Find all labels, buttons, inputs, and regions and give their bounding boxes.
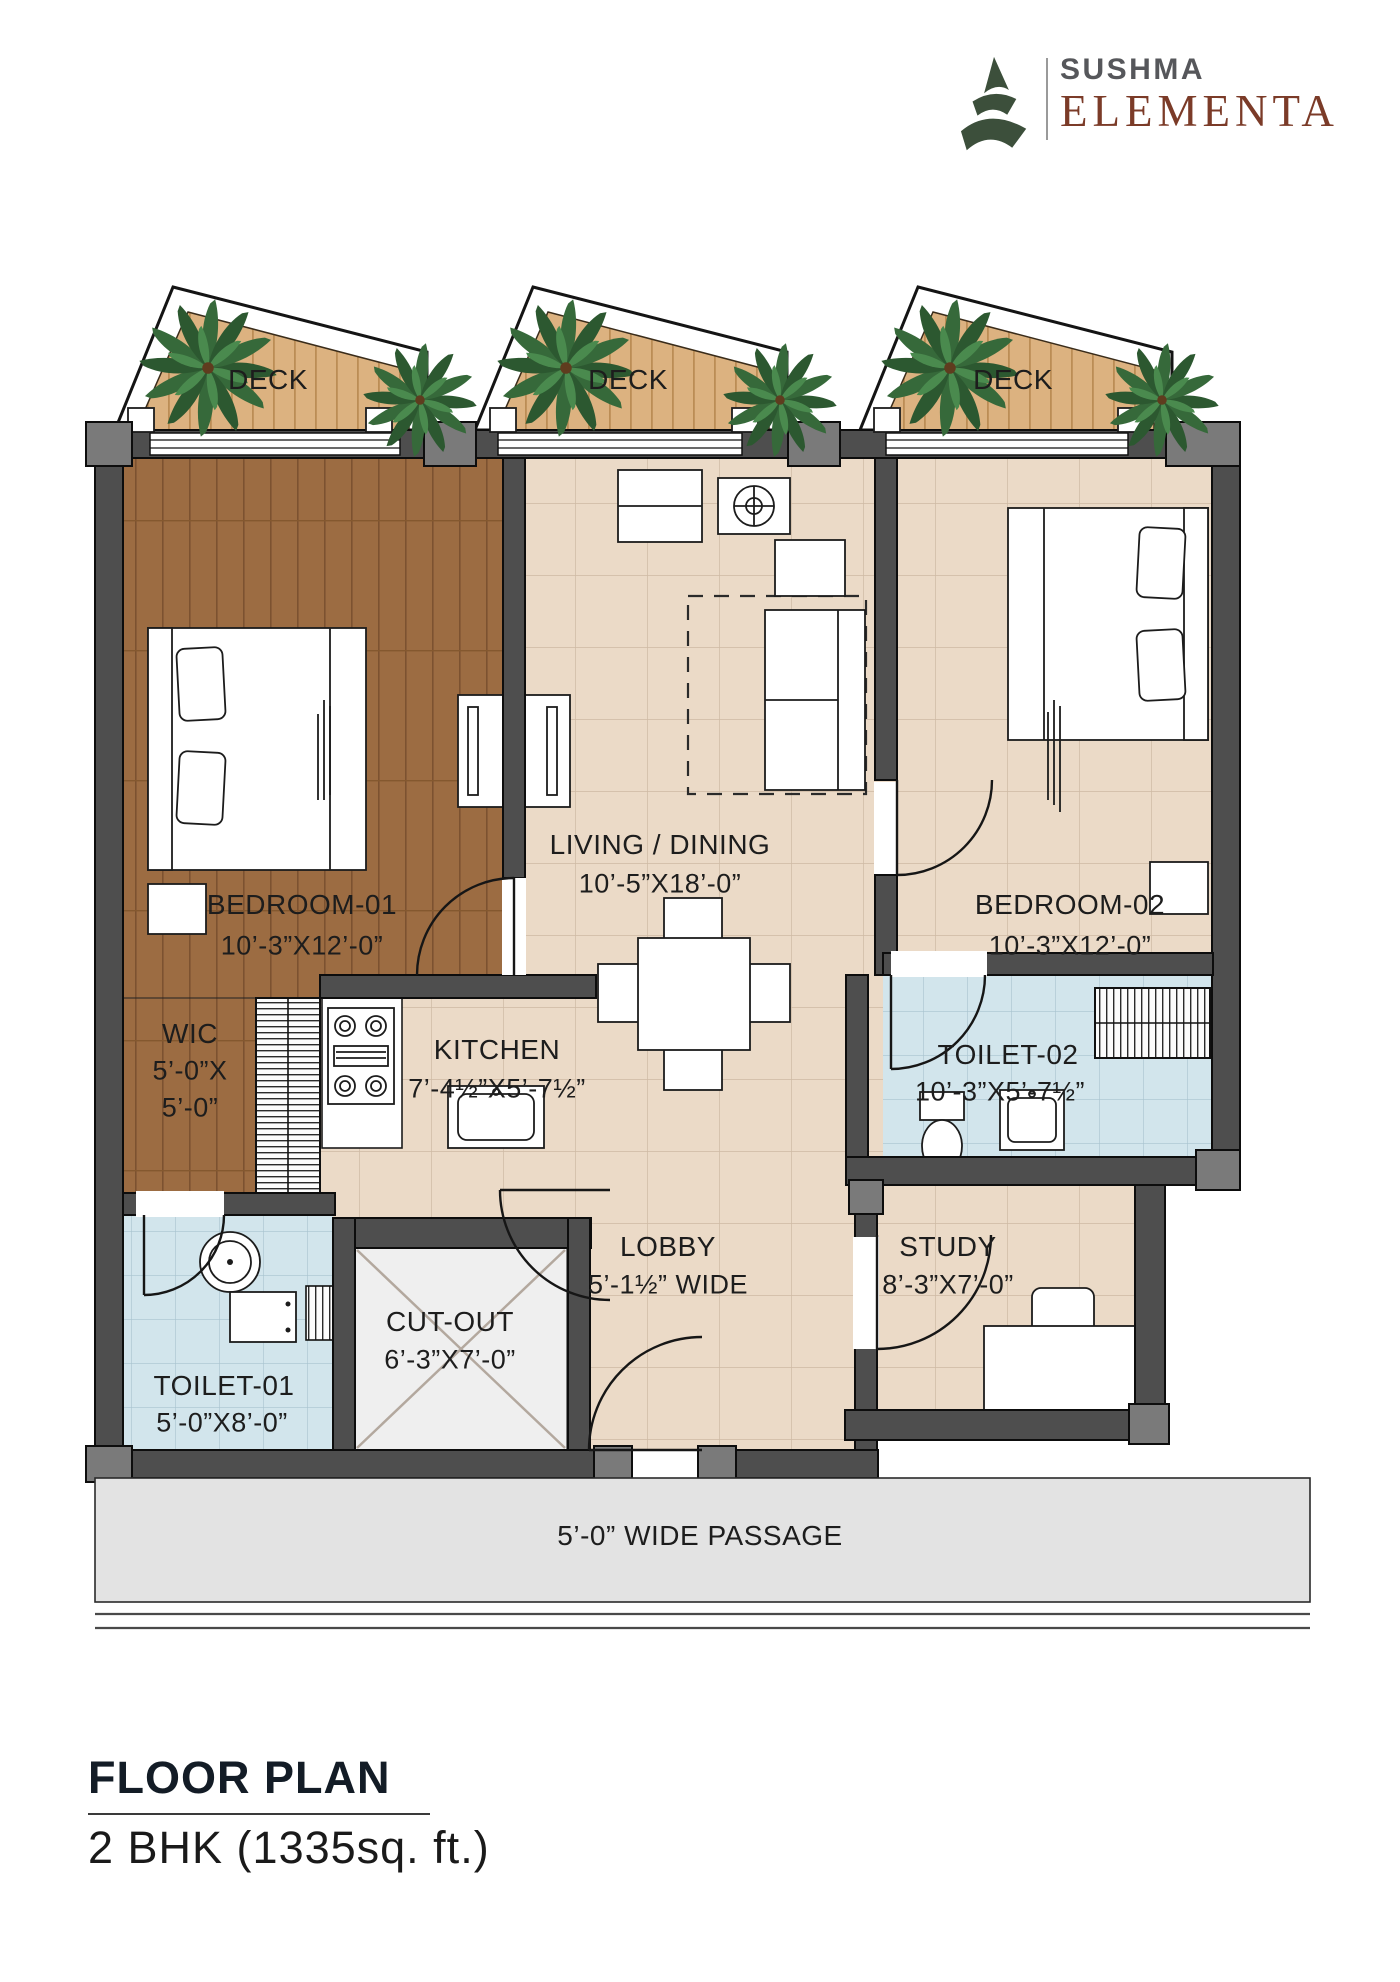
lobby-name: LOBBY [620,1231,716,1263]
cutout-dims: 6’-3”X7’-0” [384,1345,516,1376]
lobby-floor [590,1185,877,1450]
floor-plan-page: SUSHMA ELEMENTA [0,0,1400,1982]
deck-areas [115,287,1172,430]
lobby-dims: 5’-1½” WIDE [588,1270,748,1301]
wic-dims-1: 5’-0”X [152,1056,227,1087]
deck-3-label: DECK [973,364,1053,396]
windows [150,433,1128,455]
deck-1-label: DECK [228,364,308,396]
wic-name: WIC [162,1018,218,1050]
bedroom2-name: BEDROOM-02 [975,889,1165,921]
toilet1-shaft-hatch [306,1286,334,1340]
wic-dims-2: 5’-0” [162,1093,219,1124]
kitchen-name: KITCHEN [434,1034,560,1066]
bedroom1-name: BEDROOM-01 [207,889,397,921]
ceiling-fan-symbol [718,478,790,534]
floor-plan-drawing [0,0,1400,1982]
bedroom1-dims: 10’-3”X12’-0” [221,931,384,962]
toilet2-name: TOILET-02 [938,1039,1079,1071]
footer-subtitle: 2 BHK (1335sq. ft.) [88,1822,490,1874]
bed-01 [148,628,366,870]
footer-underline [88,1813,430,1815]
study-dims: 8’-3”X7’-0” [882,1270,1014,1301]
nightstand-01 [148,884,206,934]
kitchen-dims: 7’-4½”X5’-7½” [408,1074,586,1105]
bedroom2-dims: 10’-3”X12’-0” [989,931,1152,962]
toilet1-wc [230,1292,296,1342]
toilet2-dims: 10’-3”X5’-7½” [915,1077,1085,1108]
footer-title: FLOOR PLAN [88,1752,490,1804]
cutout-name: CUT-OUT [386,1306,514,1338]
living-name: LIVING / DINING [550,829,771,861]
stove [328,1008,394,1104]
bed-02 [1008,508,1208,740]
footer: FLOOR PLAN 2 BHK (1335sq. ft.) [88,1752,490,1874]
toilet1-name: TOILET-01 [154,1370,295,1402]
study-name: STUDY [899,1231,996,1263]
toilet1-dims: 5’-0”X8’-0” [156,1408,288,1439]
living-dims: 10’-5”X18’-0” [579,869,742,900]
passage-band [95,1478,1310,1628]
passage-label: 5’-0” WIDE PASSAGE [557,1520,842,1552]
deck-2-label: DECK [588,364,668,396]
